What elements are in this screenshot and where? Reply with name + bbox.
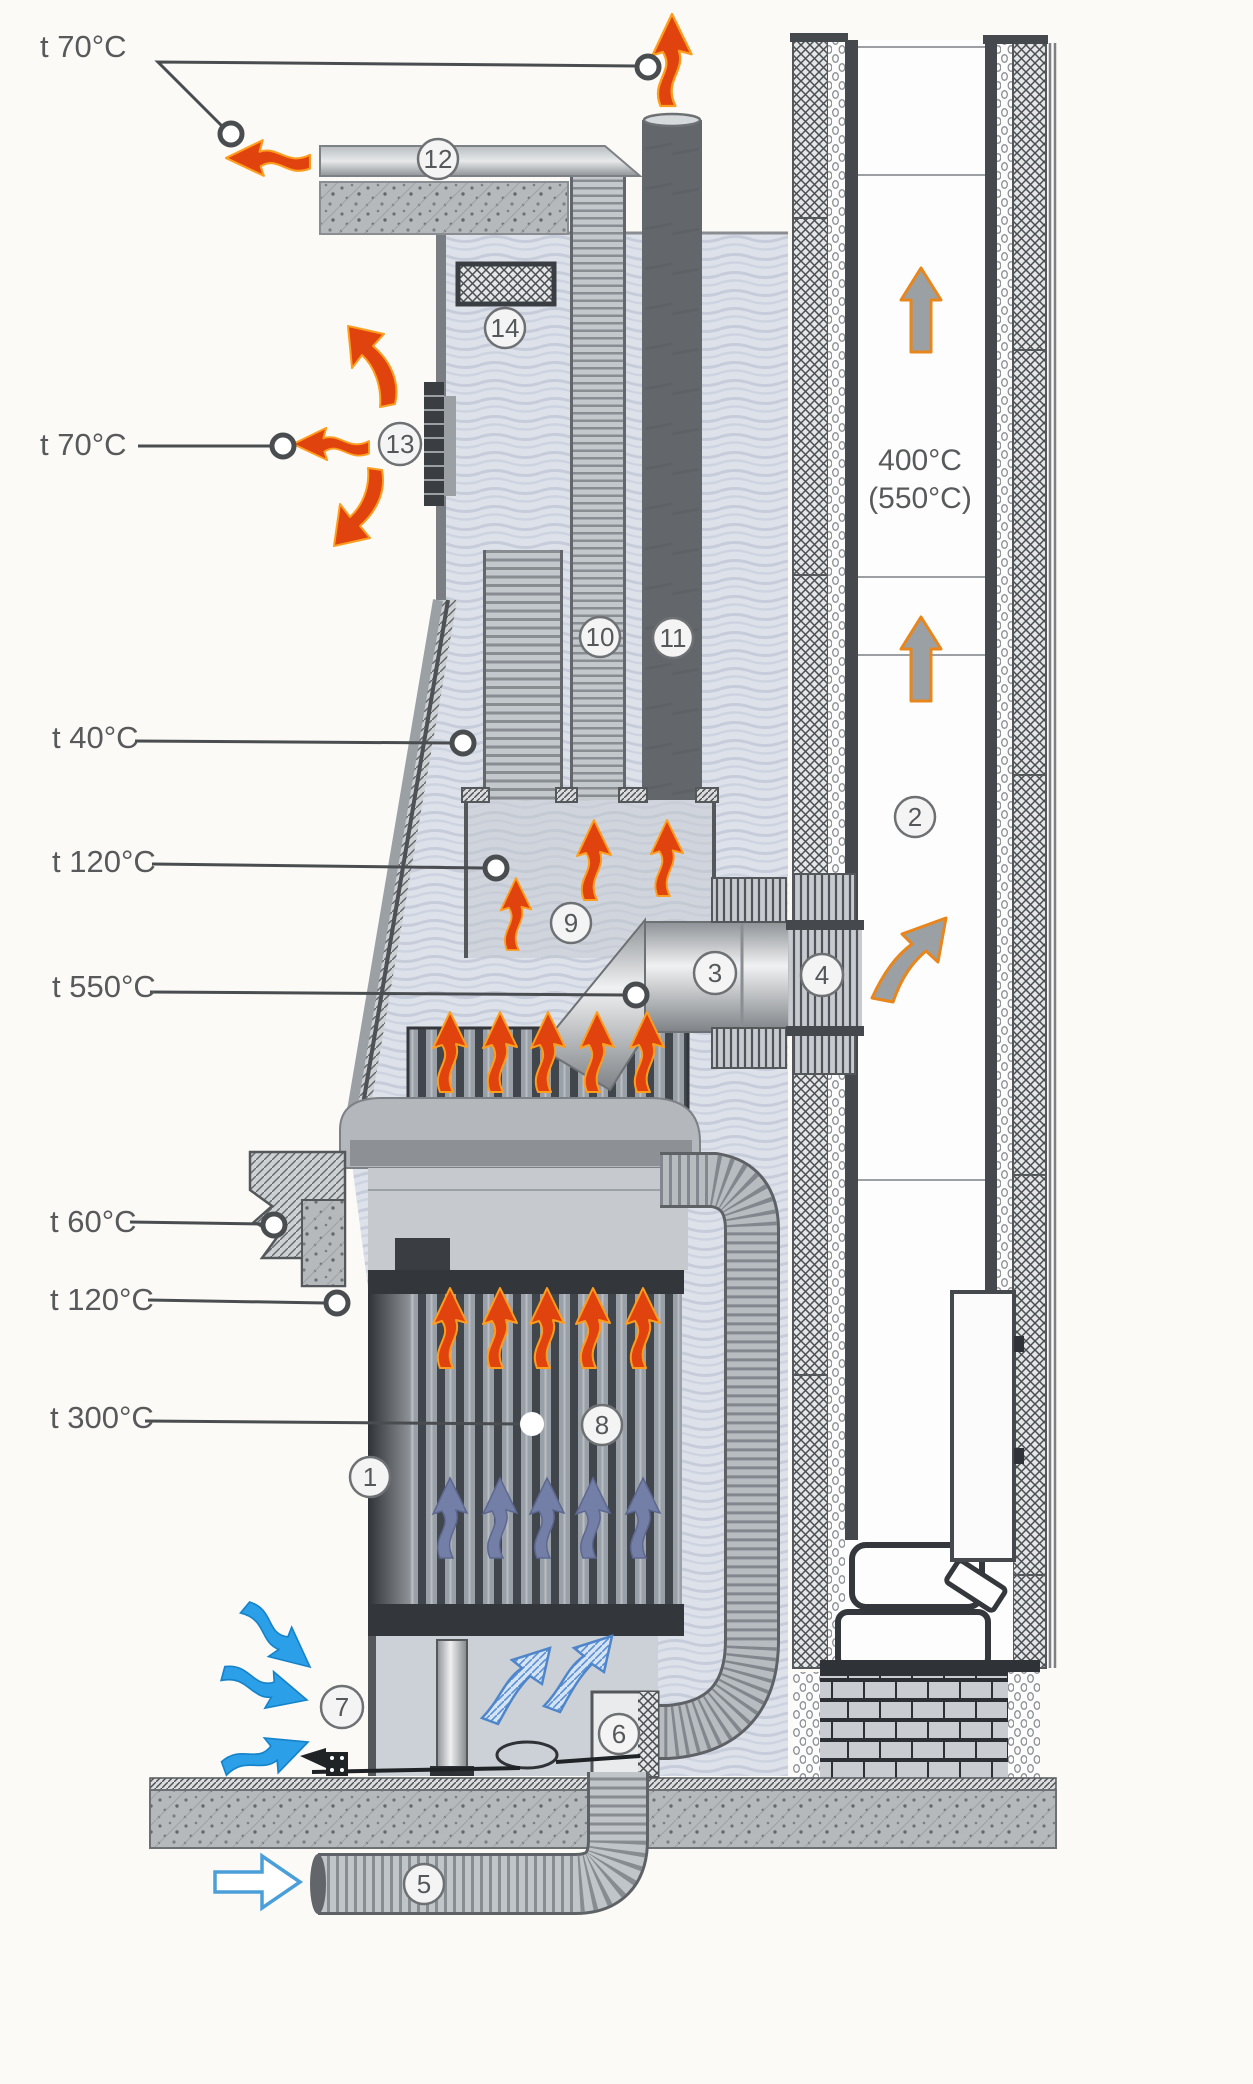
temp-label-top-vent: t 70°C <box>40 29 127 64</box>
svg-text:9: 9 <box>564 908 578 938</box>
fireplace-section-diagram: t 70°C t 70°C t 40°C t 120°C t 550°C t 6… <box>0 0 1253 2084</box>
temp-label-flue-elbow: t 550°C <box>52 969 156 1004</box>
chimney-cleanout-door <box>952 1292 1024 1560</box>
callout-6-intake-box: 6 <box>599 1714 639 1754</box>
svg-text:3: 3 <box>708 958 722 988</box>
svg-text:10: 10 <box>586 622 615 652</box>
callout-14-vent: 14 <box>485 308 525 348</box>
vent-grille-14 <box>458 264 554 304</box>
svg-text:1: 1 <box>363 1462 377 1492</box>
temp-label-hood: t 120°C <box>52 844 156 879</box>
door-handle <box>1014 1448 1024 1464</box>
svg-text:11: 11 <box>660 623 687 653</box>
convection-pipe-11 <box>644 114 700 800</box>
temp-label-mantel: t 60°C <box>50 1204 137 1239</box>
callout-9-collector: 9 <box>551 903 591 943</box>
callout-10-duct: 10 <box>580 617 620 657</box>
wall-grille-13 <box>424 382 456 506</box>
callout-12-shelf: 12 <box>418 139 458 179</box>
callout-7-room-air: 7 <box>321 1686 363 1728</box>
temp-label-enclosure: t 40°C <box>52 720 139 755</box>
diagram-canvas: t 70°C t 70°C t 40°C t 120°C t 550°C t 6… <box>0 0 1253 2084</box>
callout-13-grille: 13 <box>379 423 421 465</box>
svg-text:8: 8 <box>595 1410 609 1440</box>
flue-left-wall <box>845 40 858 1545</box>
svg-text:7: 7 <box>335 1692 349 1722</box>
svg-text:5: 5 <box>417 1869 431 1899</box>
callout-8-heat-exchanger: 8 <box>582 1405 622 1445</box>
flue-temp-line2: (550°C) <box>868 482 972 515</box>
callout-5-air-pipe: 5 <box>404 1864 444 1904</box>
door-handle <box>1014 1336 1024 1352</box>
callout-4-wall-pass: 4 <box>801 954 843 996</box>
temp-label-grille: t 70°C <box>40 427 127 462</box>
insert-dome <box>340 1098 700 1272</box>
svg-text:12: 12 <box>424 144 453 174</box>
svg-text:14: 14 <box>491 313 520 343</box>
callout-11-duct: 11 <box>653 618 693 658</box>
svg-text:4: 4 <box>815 960 829 990</box>
flue-right-wall <box>985 43 997 1292</box>
temp-label-firebox-core: t 300°C <box>50 1400 154 1435</box>
callout-2-chimney-flue: 2 <box>895 797 935 837</box>
chimney-brick-base <box>820 1676 1008 1784</box>
flue-temp-line1: 400°C <box>878 444 962 477</box>
firebox-front-wall <box>368 1294 410 1606</box>
svg-text:13: 13 <box>386 429 415 459</box>
callout-3-flue-elbow: 3 <box>694 952 736 994</box>
callout-1-firebox: 1 <box>350 1457 390 1497</box>
svg-text:6: 6 <box>612 1719 626 1749</box>
temp-label-firebox-front: t 120°C <box>50 1282 154 1317</box>
svg-text:2: 2 <box>908 802 922 832</box>
